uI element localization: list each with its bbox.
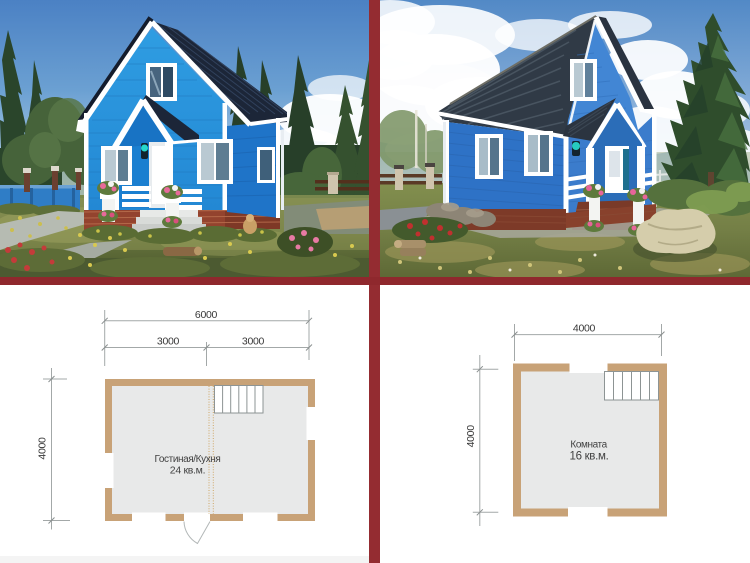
svg-text:Гостиная/Кухня: Гостиная/Кухня	[155, 454, 221, 465]
svg-text:Комната: Комната	[570, 440, 607, 451]
svg-text:3000: 3000	[242, 336, 265, 348]
svg-text:6000: 6000	[195, 309, 218, 321]
svg-text:16 кв.м.: 16 кв.м.	[569, 451, 608, 463]
svg-text:4000: 4000	[37, 437, 49, 460]
svg-text:4000: 4000	[465, 425, 477, 448]
svg-text:4000: 4000	[573, 323, 596, 335]
svg-text:3000: 3000	[157, 336, 180, 348]
svg-text:24 кв.м.: 24 кв.м.	[170, 465, 205, 477]
